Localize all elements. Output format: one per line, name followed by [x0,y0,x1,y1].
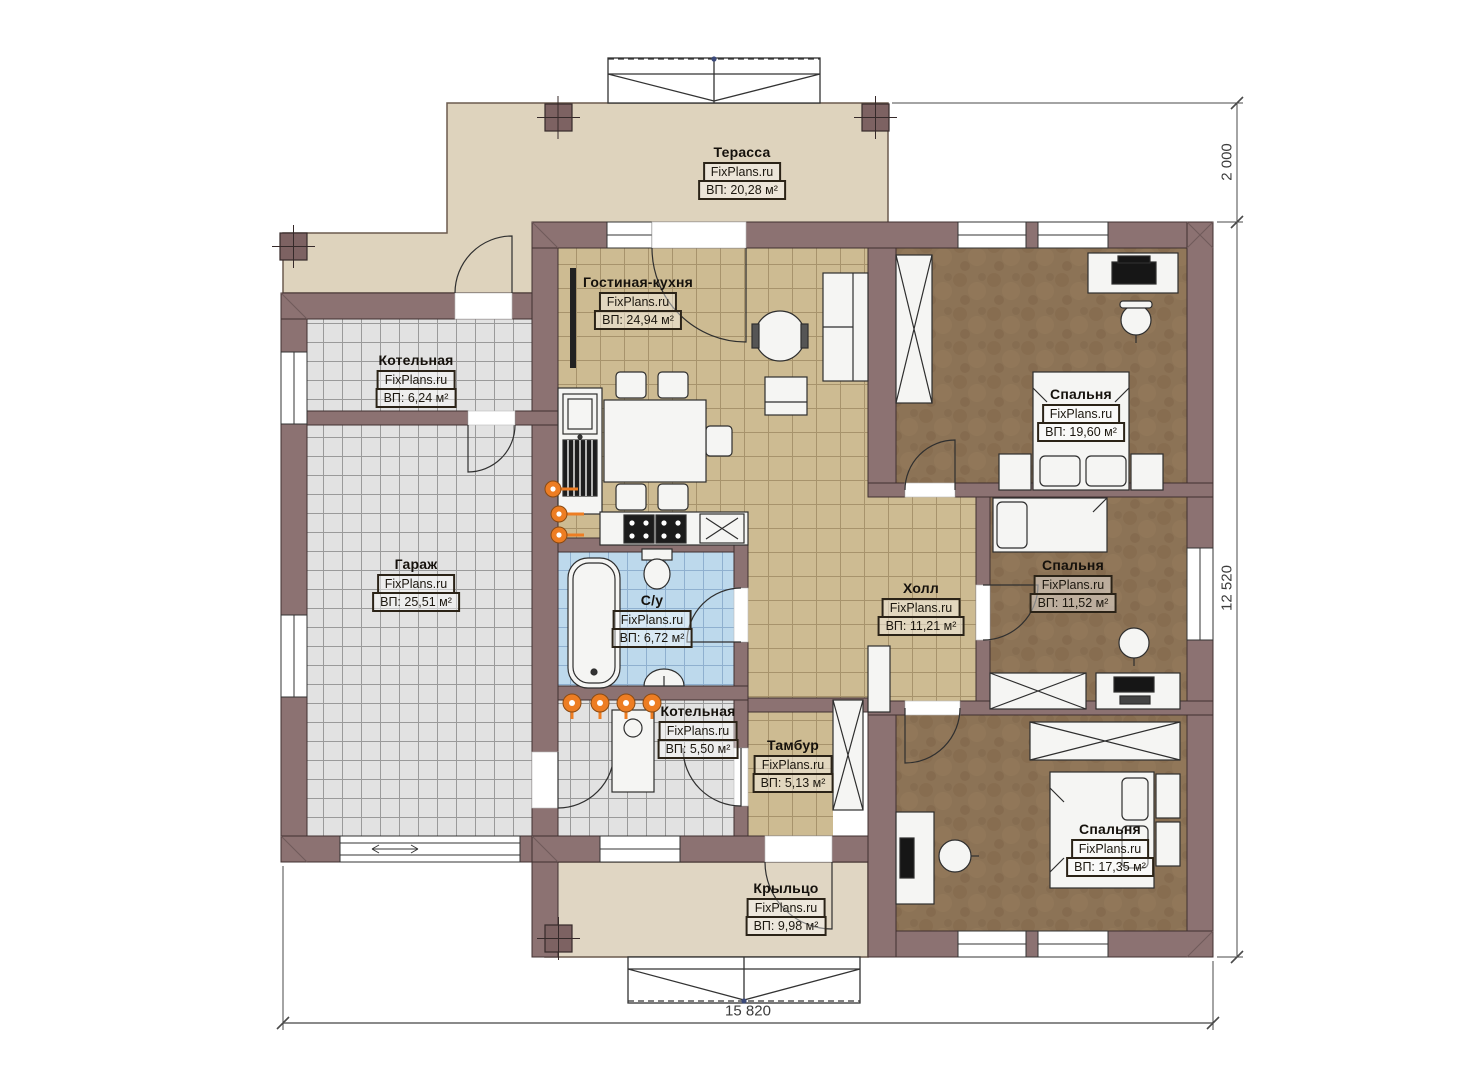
dimension-bottom-width: 15 820 [725,1003,771,1020]
window-bedroom-3 [958,931,1108,957]
floor-plan-stage: Терасса FixPlans.ru ВП: 20,28 м² Гостина… [0,0,1473,1080]
tv-panel [570,268,576,368]
window-bedroom-2 [1187,548,1213,640]
floor-corridor-hall [748,545,976,701]
kitchen-counter-bottom [600,512,748,545]
porch-area [545,862,868,957]
window-garage [281,615,307,697]
wardrobe-vestibule [833,700,863,810]
sink-x [700,514,744,543]
desk-bedroom-1 [1088,253,1178,293]
floor-living-kitchen [558,248,868,545]
window-bedroom-1 [958,222,1108,248]
window-living [607,222,652,248]
dimension-right-height: 12 520 [1219,565,1236,611]
oven [656,515,686,543]
wardrobe-bedroom-1 [896,255,932,403]
ottoman [765,377,807,415]
hall-cabinet [868,646,890,712]
toilet [642,549,672,589]
wardrobe-bedroom-2 [990,673,1086,709]
desk-bedroom-2 [1096,673,1180,709]
garage-door-opening [340,836,520,862]
floor-plan-drawing [0,0,1473,1080]
dimension-terrace-depth: 2 000 [1219,143,1236,181]
kitchen-counter-left [558,388,602,514]
floor-garage [307,425,532,836]
bathtub [568,558,620,688]
boiler-unit [612,710,654,792]
window-boiler-top [281,352,307,424]
floor-boiler-top [307,319,532,411]
floor-vestibule [748,712,833,836]
desk-bedroom-3 [896,812,934,904]
stove-burners [624,515,654,543]
bed-single-bedroom-2 [993,498,1107,552]
sofa [823,273,868,381]
porch-steps [628,957,860,1004]
window-boiler-bottom [600,836,680,862]
wardrobe-bedroom-3 [1030,722,1180,760]
terrace-steps [608,56,820,103]
floor-hall-upper [868,497,976,545]
